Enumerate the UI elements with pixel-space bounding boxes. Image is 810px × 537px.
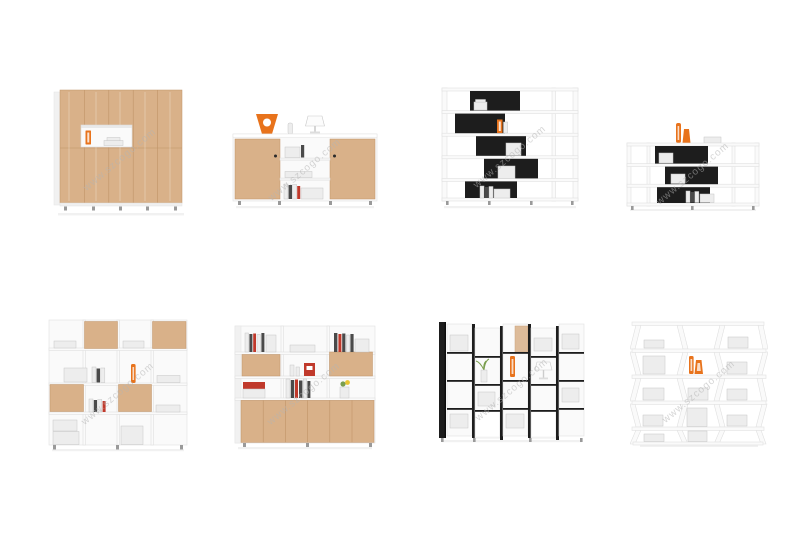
orange-vase-icon <box>510 356 515 377</box>
tall-black-white-bookcase-illustration <box>438 82 582 216</box>
door-knob <box>333 155 336 158</box>
orange-vase-icon <box>689 356 703 374</box>
orange-vase-icon <box>131 364 136 383</box>
display-niche <box>81 125 132 147</box>
white-bottle-icon <box>288 123 293 134</box>
door-knob <box>274 155 277 158</box>
tall-wood-cabinet-illustration <box>48 84 192 220</box>
product-image-low-black-white-bookcase: www.szcogo.com <box>624 120 762 216</box>
flower-icon <box>340 380 350 398</box>
cube-bookcase-illustration <box>44 316 192 456</box>
orange-vase-icon <box>676 123 691 143</box>
product-image-cube-bookcase-wood-doors: www.szcogo.com <box>44 316 192 456</box>
product-image-zigzag-bookcase: www.szcogo.com <box>630 316 768 452</box>
column-bookcase-illustration <box>436 316 588 448</box>
product-image-cabinet-beech-doors: www.szcogo.com <box>230 318 378 454</box>
product-collage: www.szcogo.com <box>0 0 810 537</box>
paper-stack <box>104 138 123 146</box>
product-image-tall-black-white-bookcase: www.szcogo.com <box>438 82 582 216</box>
product-image-tall-wood-cabinet: www.szcogo.com <box>48 84 192 220</box>
table-lamp-icon <box>306 116 325 133</box>
orange-sculpture-icon <box>256 114 278 134</box>
product-image-wood-sideboard: www.szcogo.com <box>230 108 380 218</box>
book-stack <box>704 137 721 143</box>
product-image-column-bookcase: www.szcogo.com <box>436 316 588 448</box>
wood-sideboard-illustration <box>230 108 380 218</box>
low-black-white-bookcase-illustration <box>624 120 762 216</box>
zigzag-bookcase-illustration <box>630 316 768 452</box>
orange-file-holder-icon <box>497 120 503 134</box>
orange-vase-icon <box>86 131 92 145</box>
cabinet-beech-doors-illustration <box>230 318 378 454</box>
